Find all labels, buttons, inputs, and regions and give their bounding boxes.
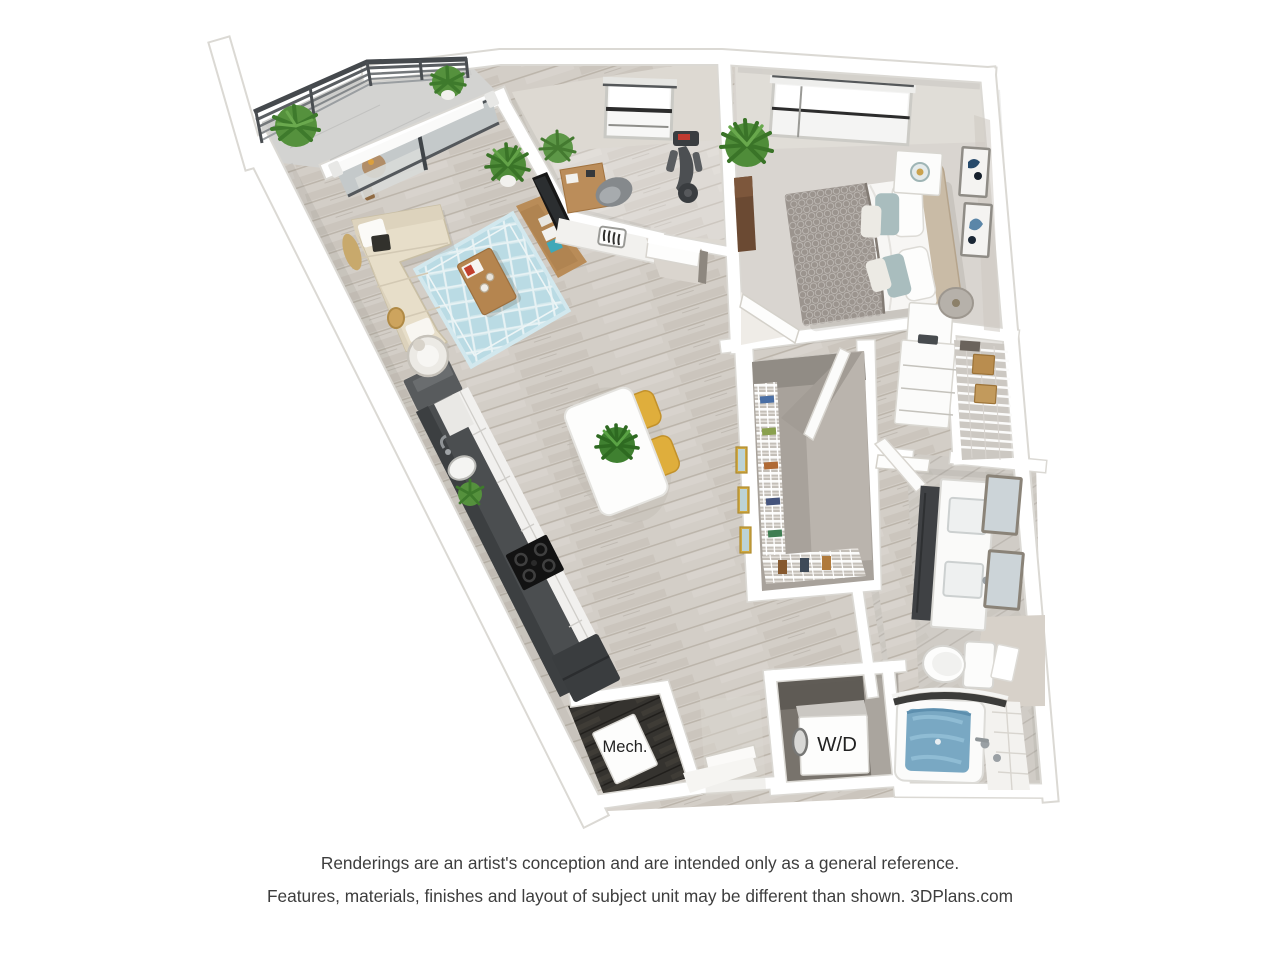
svg-text:Mech.: Mech.: [603, 738, 648, 756]
svg-text:W/D: W/D: [817, 733, 857, 756]
